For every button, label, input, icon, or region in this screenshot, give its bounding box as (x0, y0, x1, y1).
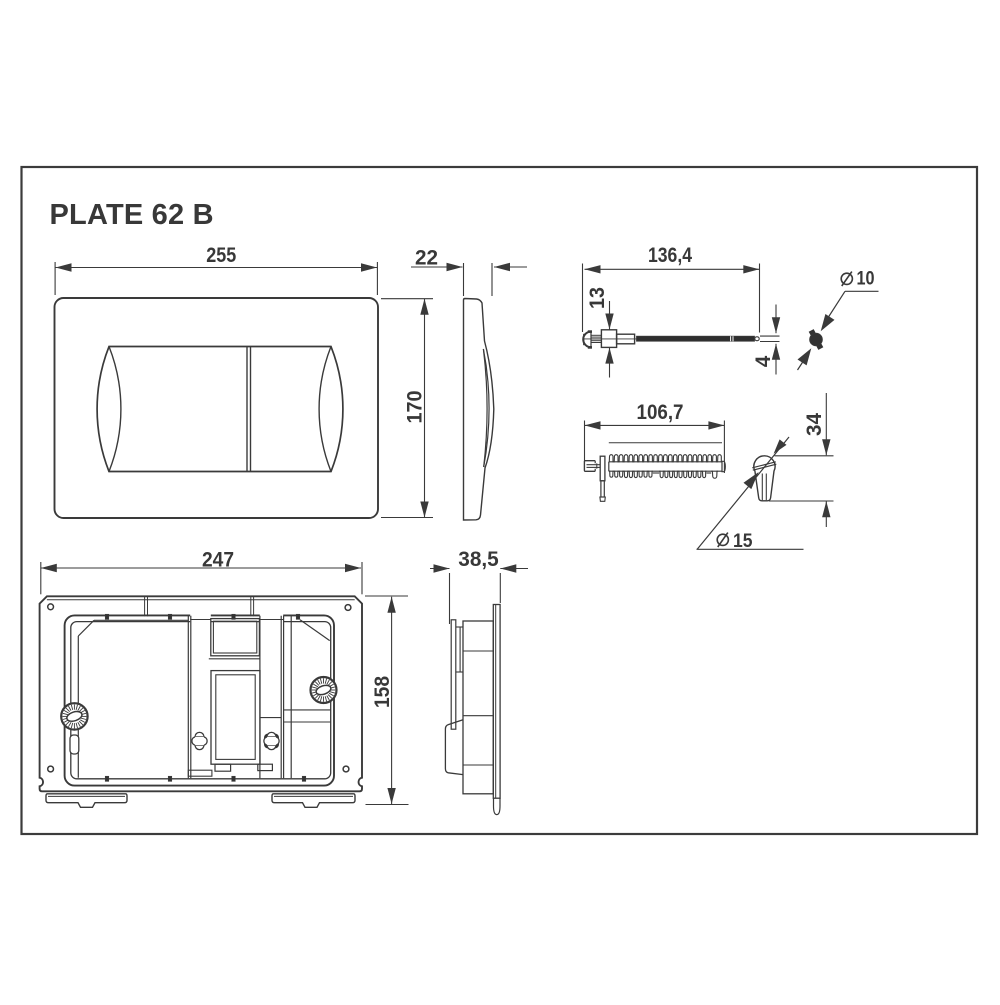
svg-text:38,5: 38,5 (458, 547, 499, 571)
svg-text:247: 247 (202, 548, 234, 572)
svg-text:136,4: 136,4 (648, 243, 692, 267)
svg-text:10: 10 (857, 269, 875, 290)
svg-text:22: 22 (415, 246, 438, 270)
svg-text:PLATE 62 B: PLATE 62 B (50, 199, 214, 231)
svg-text:158: 158 (370, 676, 394, 708)
svg-text:170: 170 (403, 390, 427, 423)
svg-text:255: 255 (206, 243, 236, 267)
svg-text:4: 4 (751, 356, 775, 368)
svg-text:106,7: 106,7 (637, 400, 684, 424)
svg-text:34: 34 (802, 413, 826, 436)
svg-text:15: 15 (733, 531, 753, 552)
svg-text:13: 13 (585, 287, 609, 309)
